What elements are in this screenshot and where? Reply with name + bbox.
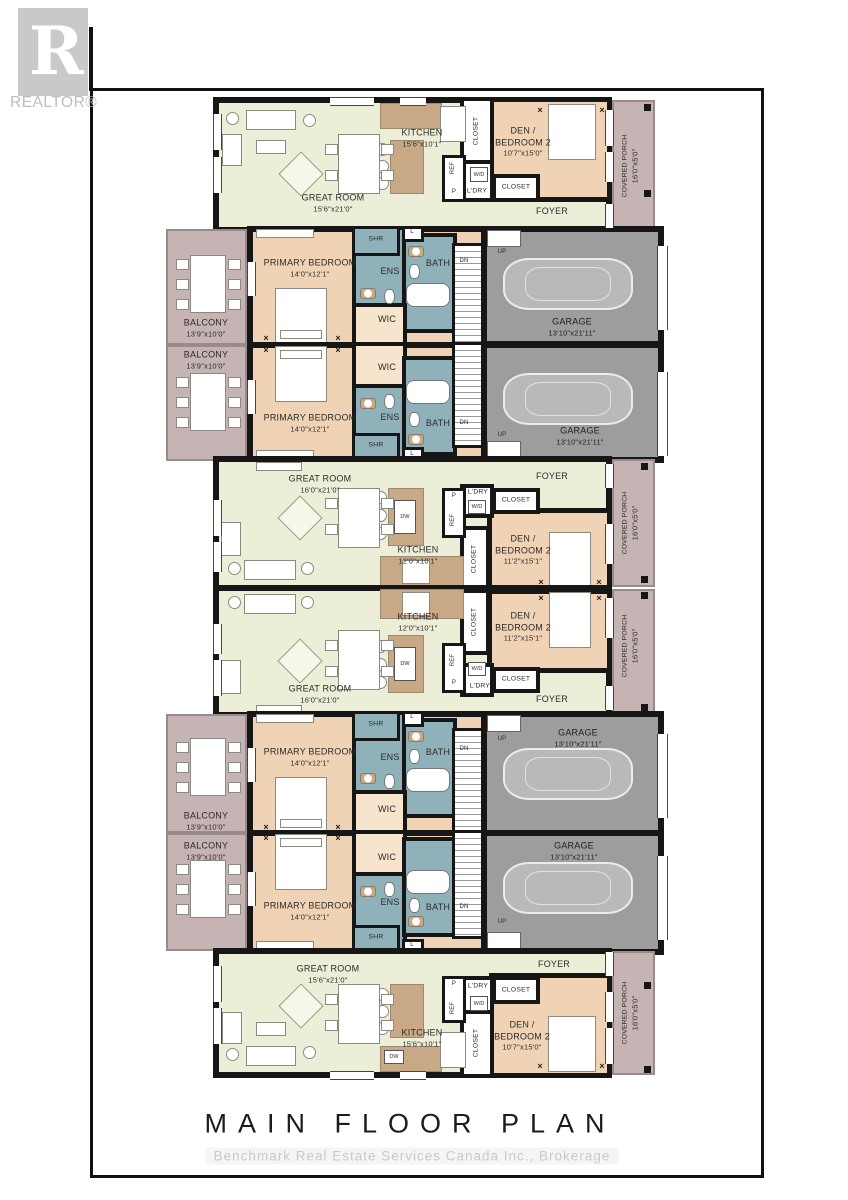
label-foyer-u2: FOYER (536, 471, 568, 483)
tub-icon-u2 (406, 380, 450, 404)
chair-icon (176, 259, 189, 270)
coffee-table-icon-u1 (256, 140, 286, 154)
label-porch-u3: COVERED PORCH16'0"x5'0" (622, 615, 641, 678)
window (213, 1008, 222, 1044)
garage-step-u1 (487, 230, 521, 247)
balcony-table-icon-u4 (190, 860, 226, 918)
chair-icon (325, 144, 338, 155)
label-ensuite-u4: ENS (380, 897, 399, 909)
stove-icon-u1 (440, 106, 466, 142)
label-closet2-u3: CLOSET (502, 676, 530, 685)
fan-icon: × (538, 577, 543, 587)
armchair-icon (226, 112, 239, 125)
frame-accent-line (89, 27, 93, 91)
dining-table-icon-u3 (338, 630, 380, 690)
label-kitchen-u1: KITCHEN15'6"x10'1" (402, 127, 443, 148)
fan-icon: × (537, 1061, 542, 1071)
washer-dryer-icon-u2: W/D (468, 500, 486, 514)
porch-post (641, 592, 648, 599)
label-shower-u2: SHR (369, 442, 384, 451)
chair-icon (381, 498, 394, 509)
window (213, 542, 222, 572)
label-wic-u4: WIC (378, 852, 396, 864)
label-laundry-u1: L'DRY (467, 188, 487, 197)
label-bath-u1: BATH (426, 258, 450, 270)
bed-pillows-icon (280, 350, 322, 359)
armchair-icon (303, 114, 316, 127)
tv-bench-icon-u2 (256, 462, 302, 471)
bed-pillows-icon (280, 819, 322, 828)
label-wic-u1: WIC (378, 314, 396, 326)
label-closet-u3: CLOSET (471, 608, 480, 636)
chair-icon (381, 144, 394, 155)
window (605, 1028, 614, 1064)
chair-icon (325, 666, 338, 677)
fan-icon: × (596, 593, 601, 603)
porch-post (641, 463, 648, 470)
garage-step-u4 (487, 932, 521, 949)
label-pantry-u2: P (452, 493, 456, 501)
label-closet-u4: CLOSET (473, 1029, 482, 1057)
realtor-logo-letter: R (29, 12, 84, 90)
label-closet-u1: CLOSET (473, 117, 482, 145)
sofa-icon-u4 (246, 1046, 296, 1066)
washer-dryer-icon-u1: W/D (470, 167, 488, 182)
fan-icon: × (537, 105, 542, 115)
label-balcony-u4: BALCONY13'9"x10'0" (184, 840, 228, 861)
fan-icon: × (335, 333, 340, 343)
chair-icon (228, 782, 241, 793)
fan-icon: × (599, 1061, 604, 1071)
label-kitchen-u2: KITCHEN12'0"x10'1" (398, 544, 439, 565)
label-ref-u4: REF (450, 1002, 458, 1015)
front-door-u1 (605, 204, 614, 228)
fan-icon: × (599, 105, 604, 115)
chair-icon (381, 666, 394, 677)
dishwasher-icon-u2: DW (394, 500, 416, 534)
chair-icon (228, 864, 241, 875)
car-icon-u2 (503, 373, 633, 425)
chair-icon (381, 170, 394, 181)
car-icon-u1 (503, 258, 633, 310)
label-great-room-u4: GREAT ROOM15'6"x21'0" (297, 963, 360, 984)
label-den-u4: DEN /BEDROOM 210'7"x15'0" (494, 1019, 550, 1052)
label-great-room-u1: GREAT ROOM15'6"x21'0" (302, 192, 365, 213)
porch-post (641, 576, 648, 583)
balcony-door-u3 (247, 748, 256, 782)
dishwasher-icon-u3: DW (394, 647, 416, 681)
tub-icon-u4 (406, 870, 450, 894)
label-great-room-u3: GREAT ROOM16'0"x21'0" (289, 683, 352, 704)
sink-icon (408, 731, 424, 742)
bed-icon-den-u2 (549, 532, 591, 588)
sink-icon (360, 773, 376, 784)
window (330, 97, 374, 106)
label-ensuite-u1: ENS (380, 266, 399, 278)
porch-post (644, 104, 651, 111)
balcony-table-icon-u2 (190, 373, 226, 431)
dresser-icon-u1 (256, 229, 314, 238)
sink-icon (408, 246, 424, 257)
chair-icon (325, 1020, 338, 1031)
garage-door-u3 (657, 734, 668, 818)
label-kitchen-u4: KITCHEN15'6"x10'1" (402, 1027, 443, 1048)
window (605, 110, 614, 146)
balcony-door-u2 (247, 380, 256, 414)
armchair-icon (301, 562, 314, 575)
fan-icon: × (335, 833, 340, 843)
label-foyer-u3: FOYER (536, 694, 568, 706)
label-linen-u2: L (410, 451, 414, 459)
chair-icon (325, 498, 338, 509)
fan-icon: × (263, 333, 268, 343)
armchair-icon (226, 1048, 239, 1061)
dishwasher-icon-u4: DW (384, 1050, 404, 1064)
label-laundry-u3: L'DRY (470, 683, 490, 692)
label-balcony-u3: BALCONY13'9"x10'0" (184, 810, 228, 831)
chair-icon (176, 279, 189, 290)
label-ref-u3: REF (450, 654, 458, 667)
loveseat-icon-u2 (221, 522, 241, 556)
label-ensuite-u2: ENS (380, 412, 399, 424)
armchair-icon (228, 562, 241, 575)
floor-plan-page: R REALTOR® × × W/D GREAT ROOM15'6"x21'0"… (0, 0, 848, 1200)
label-bath-u2: BATH (426, 418, 450, 430)
chair-icon (228, 762, 241, 773)
fan-icon: × (263, 822, 268, 832)
label-linen-u4: L (410, 942, 414, 950)
chair-icon (176, 884, 189, 895)
sofa-icon-u1 (246, 110, 296, 130)
dresser-icon-u3 (256, 714, 314, 723)
realtor-logo-icon: R (18, 8, 88, 96)
label-primary-u4: PRIMARY BEDROOM14'0"x12'1" (264, 900, 357, 921)
label-bath-u4: BATH (426, 902, 450, 914)
label-bath-u3: BATH (426, 747, 450, 759)
porch-post (644, 982, 651, 989)
label-den-u3: DEN /BEDROOM 211'2"x15'1" (495, 610, 551, 643)
label-primary-u1: PRIMARY BEDROOM14'0"x12'1" (264, 257, 357, 278)
sink-icon (360, 398, 376, 409)
sink-icon (360, 288, 376, 299)
bed-icon-den-u4 (548, 1016, 596, 1072)
sink-icon (408, 434, 424, 445)
porch-post (644, 190, 651, 197)
label-dn-u2: DN (459, 420, 468, 428)
garage-door-u1 (657, 246, 668, 330)
chair-icon (176, 742, 189, 753)
label-den-u2: DEN /BEDROOM 211'2"x15'1" (495, 533, 551, 566)
toilet-icon (384, 289, 395, 304)
label-foyer-u1: FOYER (536, 206, 568, 218)
label-porch-u2: COVERED PORCH16'0"x5'0" (622, 492, 641, 555)
washer-dryer-icon-u4: W/D (470, 996, 488, 1011)
dining-table-icon-u1 (338, 134, 380, 194)
porch-post (641, 704, 648, 711)
window (330, 1071, 374, 1080)
label-shower-u3: SHR (369, 721, 384, 730)
label-pantry-u3: P (452, 680, 456, 688)
sink-icon (360, 886, 376, 897)
label-wic-u3: WIC (378, 804, 396, 816)
chair-icon (228, 742, 241, 753)
bed-pillows-icon (280, 330, 322, 339)
label-garage-u3: GARAGE13'10"x21'11" (554, 727, 601, 748)
label-foyer-u4: FOYER (538, 959, 570, 971)
dining-table-icon-u4 (338, 984, 380, 1044)
chair-icon (228, 884, 241, 895)
label-laundry-u4: L'DRY (468, 983, 488, 992)
chair-icon (228, 904, 241, 915)
window (213, 500, 222, 536)
bed-icon-den-u3 (549, 592, 591, 648)
chair-icon (325, 640, 338, 651)
label-shower-u4: SHR (369, 934, 384, 943)
window (213, 660, 222, 696)
plan-title: MAIN FLOOR PLAN (204, 1109, 615, 1140)
label-pantry-u1: P (452, 189, 456, 197)
fan-icon: × (335, 822, 340, 832)
label-dn-u4: DN (459, 904, 468, 912)
balcony-door-u4 (247, 872, 256, 906)
chair-icon (176, 762, 189, 773)
label-den-u1: DEN /BEDROOM 210'7"x15'0" (495, 125, 551, 158)
label-linen-u3: L (410, 714, 414, 722)
front-door-u2 (605, 464, 614, 488)
front-door-u4 (605, 952, 614, 976)
dining-table-icon-u2 (338, 488, 380, 548)
chair-icon (325, 170, 338, 181)
chair-icon (176, 377, 189, 388)
label-closet-u2: CLOSET (471, 545, 480, 573)
window (605, 598, 614, 638)
fan-icon: × (335, 345, 340, 355)
bed-icon-den-u1 (548, 104, 596, 160)
label-porch-u1: COVERED PORCH16'0"x5'0" (622, 135, 641, 198)
label-garage-u1: GARAGE13'10"x21'11" (548, 316, 595, 337)
label-primary-u3: PRIMARY BEDROOM14'0"x12'1" (264, 746, 357, 767)
label-linen-u1: L (410, 229, 414, 237)
label-great-room-u2: GREAT ROOM16'0"x21'0" (289, 473, 352, 494)
chair-icon (228, 377, 241, 388)
chair-icon (176, 904, 189, 915)
chair-icon (176, 397, 189, 408)
chair-icon (228, 397, 241, 408)
loveseat-icon-u3 (221, 660, 241, 694)
balcony-door-u1 (247, 262, 256, 296)
chair-icon (325, 524, 338, 535)
chair-icon (381, 994, 394, 1005)
window (400, 1071, 426, 1080)
window (605, 524, 614, 564)
chair-icon (381, 524, 394, 535)
sofa-icon-u3 (244, 594, 296, 614)
realtor-logo-text: REALTOR® (10, 94, 97, 112)
chair-icon (228, 417, 241, 428)
tub-icon-u1 (406, 283, 450, 307)
chair-icon (176, 782, 189, 793)
toilet-icon (384, 774, 395, 789)
armchair-icon (228, 596, 241, 609)
balcony-table-icon-u1 (190, 255, 226, 313)
armchair-icon (301, 596, 314, 609)
toilet-icon (409, 898, 420, 913)
label-garage-u4: GARAGE13'10"x21'11" (550, 840, 597, 861)
porch-post (644, 1066, 651, 1073)
label-up-u4: UP (498, 919, 507, 927)
label-shower-u1: SHR (369, 236, 384, 245)
label-garage-u2: GARAGE13'10"x21'11" (556, 425, 603, 446)
loveseat-icon-u4 (222, 1012, 242, 1044)
watermark: Benchmark Real Estate Services Canada In… (206, 1148, 619, 1165)
chair-icon (228, 259, 241, 270)
chair-icon (381, 1020, 394, 1031)
fan-icon: × (263, 833, 268, 843)
label-ref-u2: REF (450, 514, 458, 527)
car-icon-u4 (503, 862, 633, 914)
fan-icon: × (263, 345, 268, 355)
label-closet2-u2: CLOSET (502, 497, 530, 506)
coffee-table-icon-u4 (256, 1022, 286, 1036)
window (605, 152, 614, 182)
toilet-icon (384, 882, 395, 897)
label-up-u2: UP (498, 432, 507, 440)
loveseat-icon-u1 (222, 134, 242, 166)
bed-pillows-icon (280, 838, 322, 847)
label-balcony-u2: BALCONY13'9"x10'0" (184, 349, 228, 370)
front-door-u3 (605, 686, 614, 710)
label-porch-u4: COVERED PORCH16'0"x5'0" (622, 982, 641, 1045)
sofa-icon-u2 (244, 560, 296, 580)
stove-icon-u4 (440, 1032, 466, 1068)
window (213, 624, 222, 654)
tub-icon-u3 (406, 768, 450, 792)
window (605, 992, 614, 1022)
label-ref-u1: REF (450, 162, 458, 175)
garage-door-u2 (657, 372, 668, 456)
garage-door-u4 (657, 856, 668, 940)
chair-icon (228, 299, 241, 310)
car-icon-u3 (503, 748, 633, 800)
garage-step-u3 (487, 715, 521, 732)
sink-icon (408, 916, 424, 927)
label-dn-u3: DN (459, 746, 468, 754)
label-closet2-u4: CLOSET (502, 987, 530, 996)
chair-icon (176, 299, 189, 310)
label-up-u3: UP (498, 736, 507, 744)
chair-icon (176, 864, 189, 875)
toilet-icon (409, 412, 420, 427)
toilet-icon (409, 264, 420, 279)
label-pantry-u4: P (452, 981, 456, 989)
toilet-icon (384, 394, 395, 409)
armchair-icon (303, 1046, 316, 1059)
label-closet2-u1: CLOSET (502, 184, 530, 193)
window (213, 114, 222, 150)
window (213, 157, 222, 193)
label-laundry-u2: L'DRY (468, 489, 488, 498)
toilet-icon (409, 749, 420, 764)
label-balcony-u1: BALCONY13'9"x10'0" (184, 317, 228, 338)
fan-icon: × (596, 577, 601, 587)
window (213, 966, 222, 1002)
label-wic-u2: WIC (378, 362, 396, 374)
chair-icon (381, 640, 394, 651)
fan-icon: × (538, 593, 543, 603)
chair-icon (325, 994, 338, 1005)
label-primary-u2: PRIMARY BEDROOM14'0"x12'1" (264, 412, 357, 433)
window (400, 97, 426, 106)
chair-icon (176, 417, 189, 428)
label-up-u1: UP (498, 249, 507, 257)
washer-dryer-icon-u3: W/D (468, 662, 486, 676)
kitchen-counter-u1 (380, 103, 442, 129)
label-dn-u1: DN (459, 258, 468, 266)
balcony-table-icon-u3 (190, 738, 226, 796)
chair-icon (228, 279, 241, 290)
label-ensuite-u3: ENS (380, 752, 399, 764)
label-kitchen-u3: KITCHEN12'0"x10'1" (398, 611, 439, 632)
